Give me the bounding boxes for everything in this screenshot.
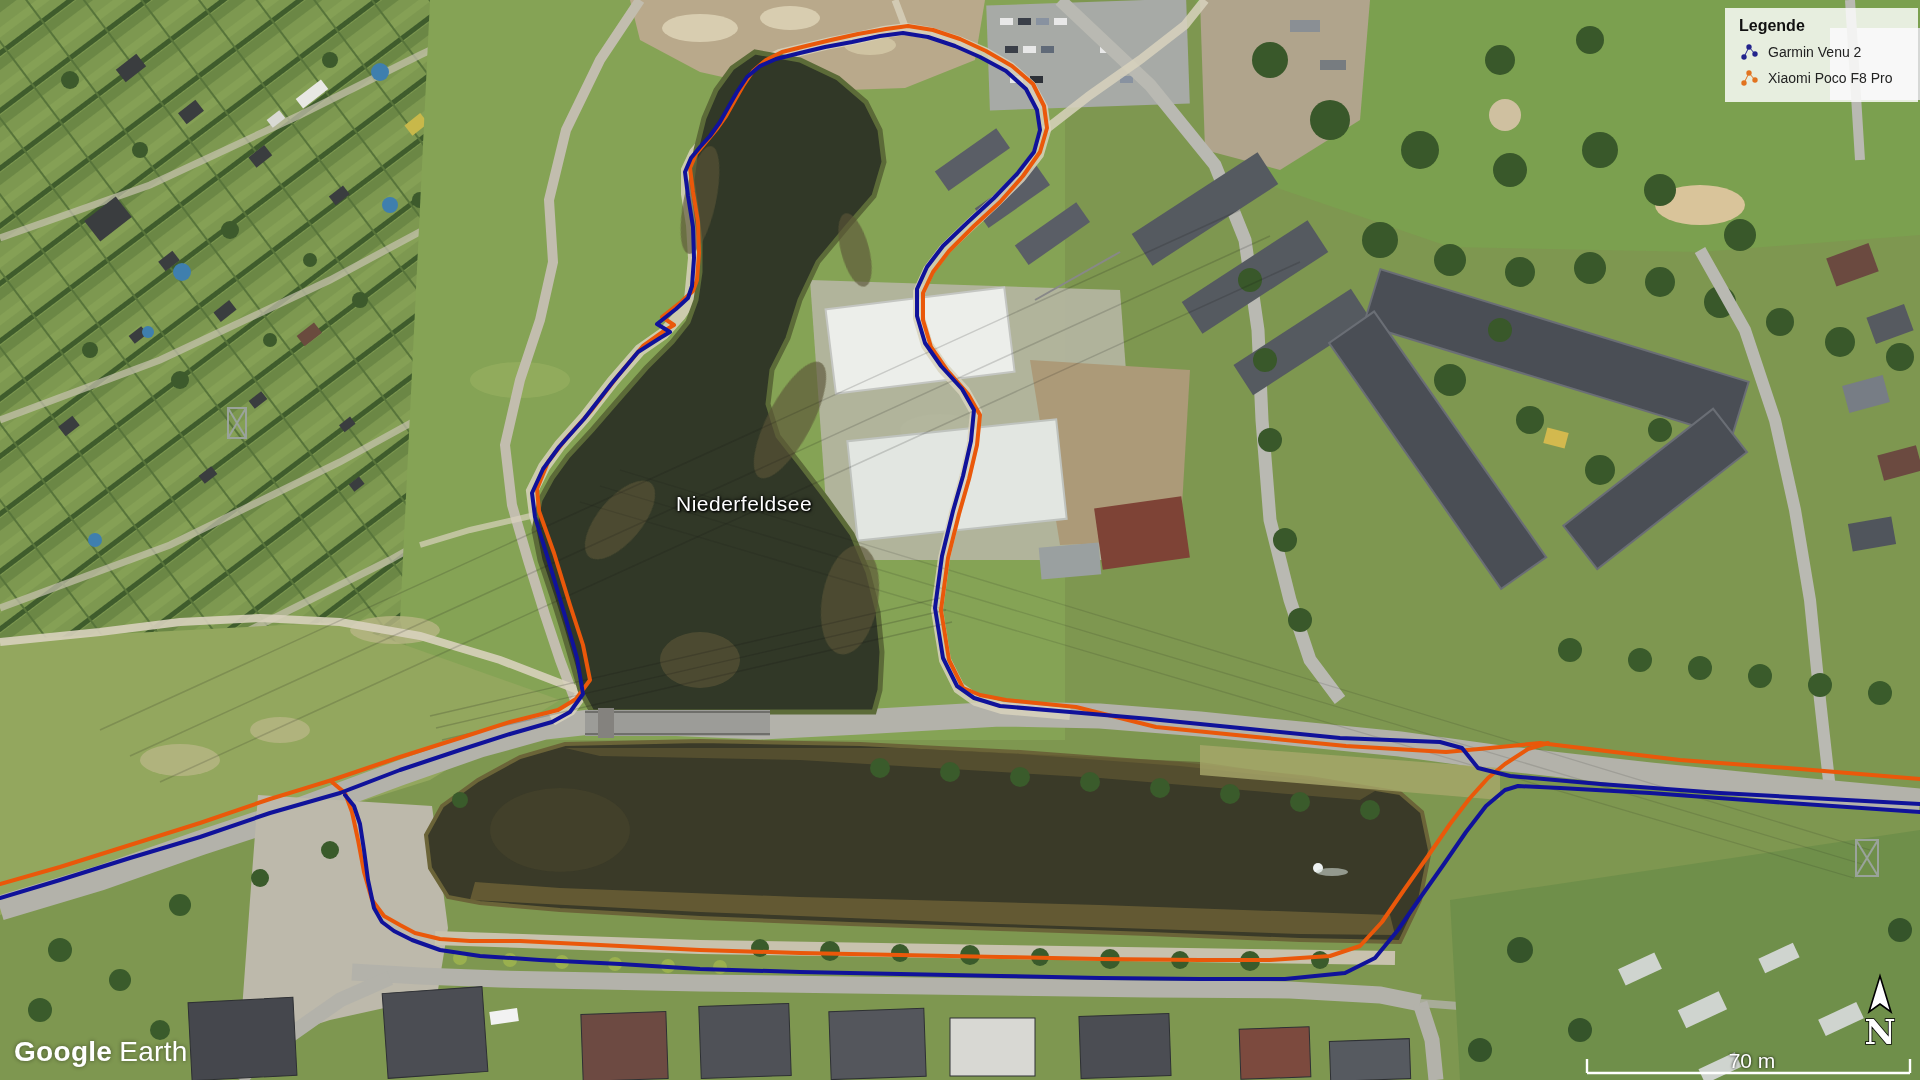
google-earth-logo: GoogleEarth — [14, 1036, 188, 1068]
legend-label-xiaomi: Xiaomi Poco F8 Pro — [1768, 70, 1893, 86]
google-earth-window: Niederfeldsee Legende Garmin Venu 2 Xiao… — [0, 0, 1920, 1080]
place-label: Niederfeldsee — [676, 492, 812, 516]
gardens-bottom-right — [1450, 830, 1920, 1080]
logo-earth: Earth — [119, 1036, 187, 1067]
track-points-icon-orange — [1739, 68, 1759, 88]
map-canvas[interactable] — [0, 0, 1920, 1080]
bridge — [585, 708, 770, 738]
legend-title: Legende — [1739, 17, 1906, 35]
track-points-icon-blue — [1739, 42, 1759, 62]
logo-google: Google — [14, 1036, 112, 1067]
legend-item-xiaomi[interactable]: Xiaomi Poco F8 Pro — [1739, 68, 1906, 88]
construction-buildings — [810, 252, 1190, 580]
parked-van — [489, 1008, 519, 1025]
legend-panel: Legende Garmin Venu 2 Xiaomi Poco F8 Pro — [1725, 8, 1918, 102]
legend-label-garmin: Garmin Venu 2 — [1768, 44, 1861, 60]
legend-item-garmin[interactable]: Garmin Venu 2 — [1739, 42, 1906, 62]
